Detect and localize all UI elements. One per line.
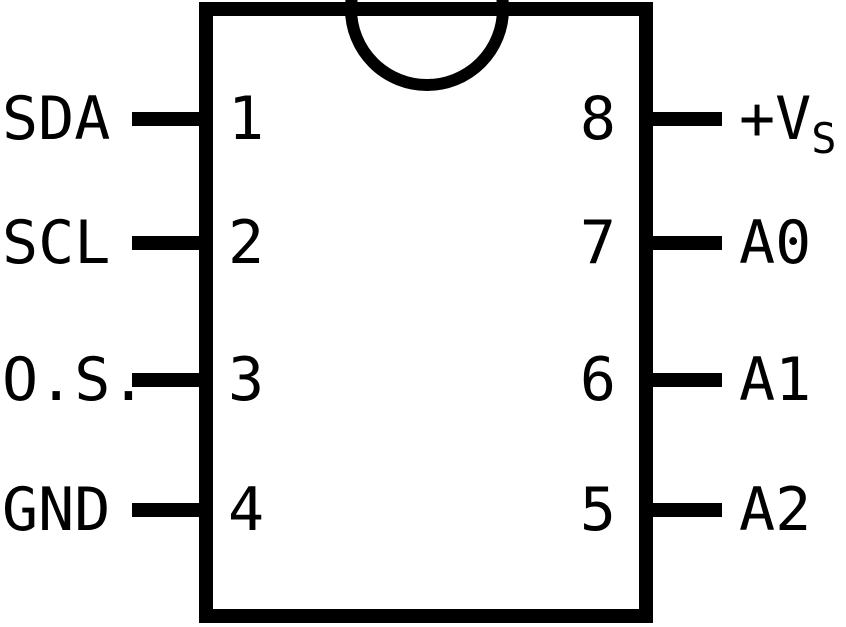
pin-label-a0-main: A0 — [739, 208, 811, 278]
pin-number-8: 8 — [579, 88, 616, 150]
pin-lead-8 — [639, 112, 722, 126]
pin-number-4: 4 — [228, 479, 264, 541]
pin-label-os: O.S. — [2, 349, 147, 411]
pin-lead-1 — [132, 112, 204, 126]
pin-label-sda: SDA — [2, 88, 110, 150]
pin-lead-4 — [132, 503, 204, 517]
pin-lead-7 — [639, 236, 722, 250]
pin-lead-5 — [639, 503, 722, 517]
pin-label-a2-main: A2 — [739, 475, 811, 545]
pin-number-2: 2 — [228, 212, 264, 274]
pin-label-vs-main: +V — [739, 84, 811, 154]
pin-number-1: 1 — [228, 88, 264, 150]
pin-number-3: 3 — [228, 349, 264, 411]
pin-label-gnd: GND — [2, 479, 110, 541]
pin-label-a1: A1 — [739, 349, 811, 411]
pin-label-a0: A0 — [739, 212, 811, 274]
pin-label-vs: +VS — [739, 88, 837, 150]
pin-label-scl: SCL — [2, 212, 110, 274]
pin-lead-6 — [639, 373, 722, 387]
pin-number-6: 6 — [579, 349, 616, 411]
pin-lead-2 — [132, 236, 204, 250]
pin-number-7: 7 — [579, 212, 616, 274]
pin-label-a1-main: A1 — [739, 345, 811, 415]
pinout-diagram: SDA SCL O.S. GND 1 2 3 4 8 7 6 5 +VS A0 … — [0, 0, 846, 627]
pin-label-a2: A2 — [739, 479, 811, 541]
pin-number-5: 5 — [579, 479, 616, 541]
pin-label-vs-subscript: S — [811, 114, 836, 163]
